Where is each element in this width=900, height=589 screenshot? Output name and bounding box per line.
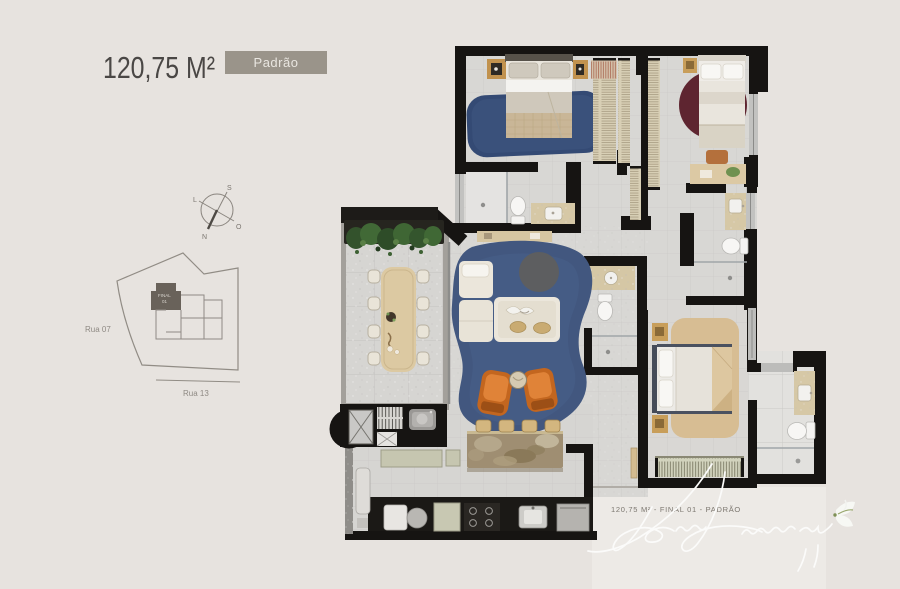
svg-text:L: L	[193, 197, 197, 204]
svg-text:Padrão: Padrão	[254, 55, 299, 70]
svg-text:N: N	[202, 234, 207, 241]
svg-text:Rua 07: Rua 07	[85, 325, 111, 334]
svg-text:O: O	[236, 224, 242, 231]
svg-text:01: 01	[162, 299, 168, 304]
svg-text:S: S	[227, 185, 232, 192]
svg-text:Rua 13: Rua 13	[183, 389, 209, 398]
svg-text:120,75 M²: 120,75 M²	[103, 50, 215, 85]
svg-text:FINAL: FINAL	[158, 293, 171, 298]
